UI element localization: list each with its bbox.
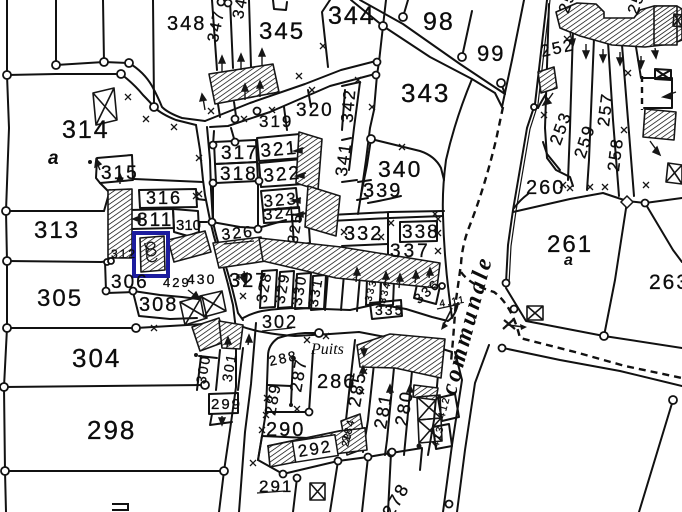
svg-text:347: 347 xyxy=(205,8,228,44)
svg-text:322: 322 xyxy=(263,163,302,187)
svg-text:98: 98 xyxy=(423,8,455,36)
svg-text:278: 278 xyxy=(378,479,413,512)
svg-text:290: 290 xyxy=(266,419,305,441)
svg-text:299: 299 xyxy=(211,396,242,413)
svg-text:312: 312 xyxy=(111,247,137,261)
svg-text:345: 345 xyxy=(259,18,305,45)
svg-text:344: 344 xyxy=(328,2,376,30)
svg-text:314: 314 xyxy=(62,116,110,144)
svg-text:332: 332 xyxy=(344,223,383,245)
svg-text:308: 308 xyxy=(139,294,178,316)
svg-text:348: 348 xyxy=(167,13,206,35)
svg-text:317: 317 xyxy=(221,143,259,164)
svg-text:298: 298 xyxy=(87,415,136,445)
svg-text:310: 310 xyxy=(176,217,201,234)
svg-text:304: 304 xyxy=(72,343,121,373)
svg-text:a: a xyxy=(564,252,573,269)
svg-text:311: 311 xyxy=(137,210,173,231)
svg-text:252: 252 xyxy=(539,35,577,61)
svg-text:280: 280 xyxy=(391,388,417,427)
svg-text:341: 341 xyxy=(332,141,356,178)
svg-text:253: 253 xyxy=(546,109,576,148)
svg-text:313: 313 xyxy=(34,217,80,244)
svg-text:321: 321 xyxy=(260,138,299,162)
svg-text:430: 430 xyxy=(187,271,216,287)
svg-text:318: 318 xyxy=(220,164,258,185)
svg-text:259: 259 xyxy=(570,122,599,161)
svg-text:343: 343 xyxy=(401,78,450,108)
svg-text:306: 306 xyxy=(111,272,149,293)
svg-text:340: 340 xyxy=(378,156,422,182)
svg-text:a: a xyxy=(48,148,59,169)
svg-text:305: 305 xyxy=(37,285,83,312)
svg-text:337: 337 xyxy=(390,241,431,262)
svg-text:316: 316 xyxy=(146,188,182,208)
svg-text:260: 260 xyxy=(526,177,565,199)
svg-text:342: 342 xyxy=(338,88,360,124)
svg-text:339: 339 xyxy=(363,180,402,202)
svg-text:338: 338 xyxy=(402,222,440,243)
svg-text:258: 258 xyxy=(604,136,627,172)
svg-text:34: 34 xyxy=(230,0,251,20)
svg-text:335: 335 xyxy=(375,302,404,318)
svg-text:320: 320 xyxy=(296,100,334,121)
svg-text:263: 263 xyxy=(649,271,682,294)
svg-text:300: 300 xyxy=(193,353,214,385)
svg-text:315: 315 xyxy=(101,163,139,184)
svg-text:Puits: Puits xyxy=(310,341,344,358)
svg-text:99: 99 xyxy=(477,41,505,66)
svg-text:291: 291 xyxy=(259,477,293,496)
svg-text:319: 319 xyxy=(259,112,293,131)
